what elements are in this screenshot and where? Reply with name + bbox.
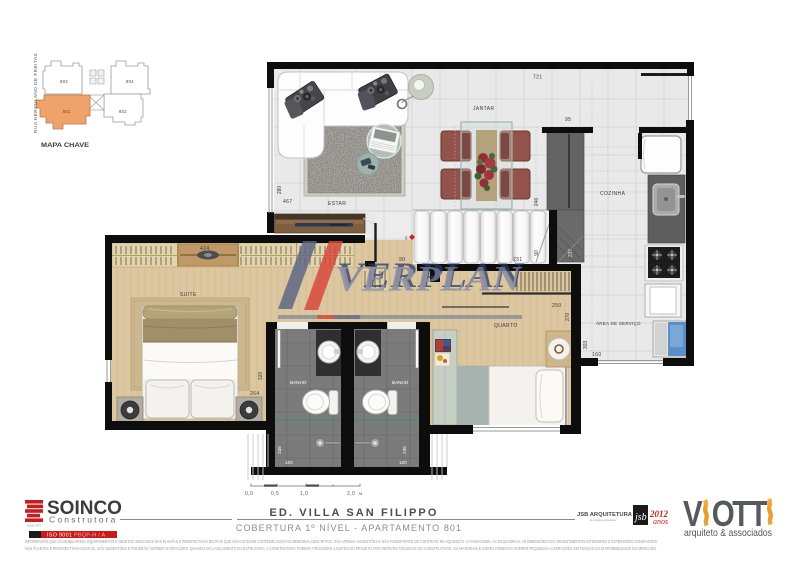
svg-text:NAS PLANTAS E PERSPECTIVAS DIG: NAS PLANTAS E PERSPECTIVAS DIGITAIS, SÃO… [25,546,657,551]
svg-text:721: 721 [533,75,543,81]
svg-text:QUARTO: QUARTO [494,323,518,329]
svg-text:INFORMAMOS QUE OS MOBILIÁRIOS,: INFORMAMOS QUE OS MOBILIÁRIOS, EQUIPAMEN… [25,539,657,544]
svg-text:120: 120 [285,460,293,465]
svg-text:280: 280 [277,186,283,195]
svg-text:premiados arquitetos: premiados arquitetos [590,518,617,522]
svg-text:235: 235 [402,446,407,454]
svg-text:1,0: 1,0 [300,491,308,497]
svg-text:801: 801 [63,109,71,114]
svg-text:VERPLAN: VERPLAN [335,259,523,299]
svg-text:424: 424 [200,246,210,252]
svg-text:802: 802 [119,109,127,114]
svg-text:ED. VILLA SAN FILIPPO: ED. VILLA SAN FILIPPO [270,507,439,519]
svg-text:2,0: 2,0 [347,491,355,497]
svg-text:ISO 9001 PBQP-H / A: ISO 9001 PBQP-H / A [47,533,106,539]
svg-text:jsb: jsb [633,512,647,523]
svg-text:COBERTURA 1º NÍVEL - APARTAMEN: COBERTURA 1º NÍVEL - APARTAMENTO 801 [236,523,462,533]
svg-text:ÁREA DE SERVIÇO: ÁREA DE SERVIÇO [596,320,641,326]
svg-text:804: 804 [126,79,134,84]
svg-text:320: 320 [258,372,264,381]
svg-text:RUA HERCULANO DE FREITAS: RUA HERCULANO DE FREITAS [33,53,38,133]
svg-text:BANHO: BANHO [392,380,409,385]
svg-text:237: 237 [568,249,574,258]
svg-text:MAPA CHAVE: MAPA CHAVE [41,142,90,149]
svg-text:arquiteto & associados: arquiteto & associados [684,527,772,539]
svg-text:120: 120 [399,460,407,465]
svg-text:160: 160 [592,352,602,358]
svg-text:0,0: 0,0 [245,491,253,497]
svg-text:90: 90 [534,250,540,256]
svg-text:0,5: 0,5 [271,491,279,497]
svg-text:ESTAR: ESTAR [328,201,346,207]
svg-text:Desde 1972: Desde 1972 [27,524,42,528]
svg-text:BANHO: BANHO [290,380,307,385]
svg-text:JANTAR: JANTAR [473,106,494,112]
svg-text:250: 250 [552,303,562,309]
svg-text:246: 246 [534,198,540,207]
svg-text:803: 803 [60,79,68,84]
svg-text:anos: anos [653,517,668,526]
svg-text:235: 235 [277,446,282,454]
svg-text:270: 270 [565,313,571,322]
svg-text:264: 264 [250,391,260,397]
svg-text:467: 467 [283,199,293,205]
svg-text:SUITE: SUITE [180,292,197,298]
svg-text:303: 303 [583,341,589,350]
svg-text:Construtora: Construtora [49,515,118,525]
svg-text:COZINHA: COZINHA [600,191,626,197]
svg-text:95: 95 [565,117,571,123]
svg-text:M: M [359,491,363,496]
